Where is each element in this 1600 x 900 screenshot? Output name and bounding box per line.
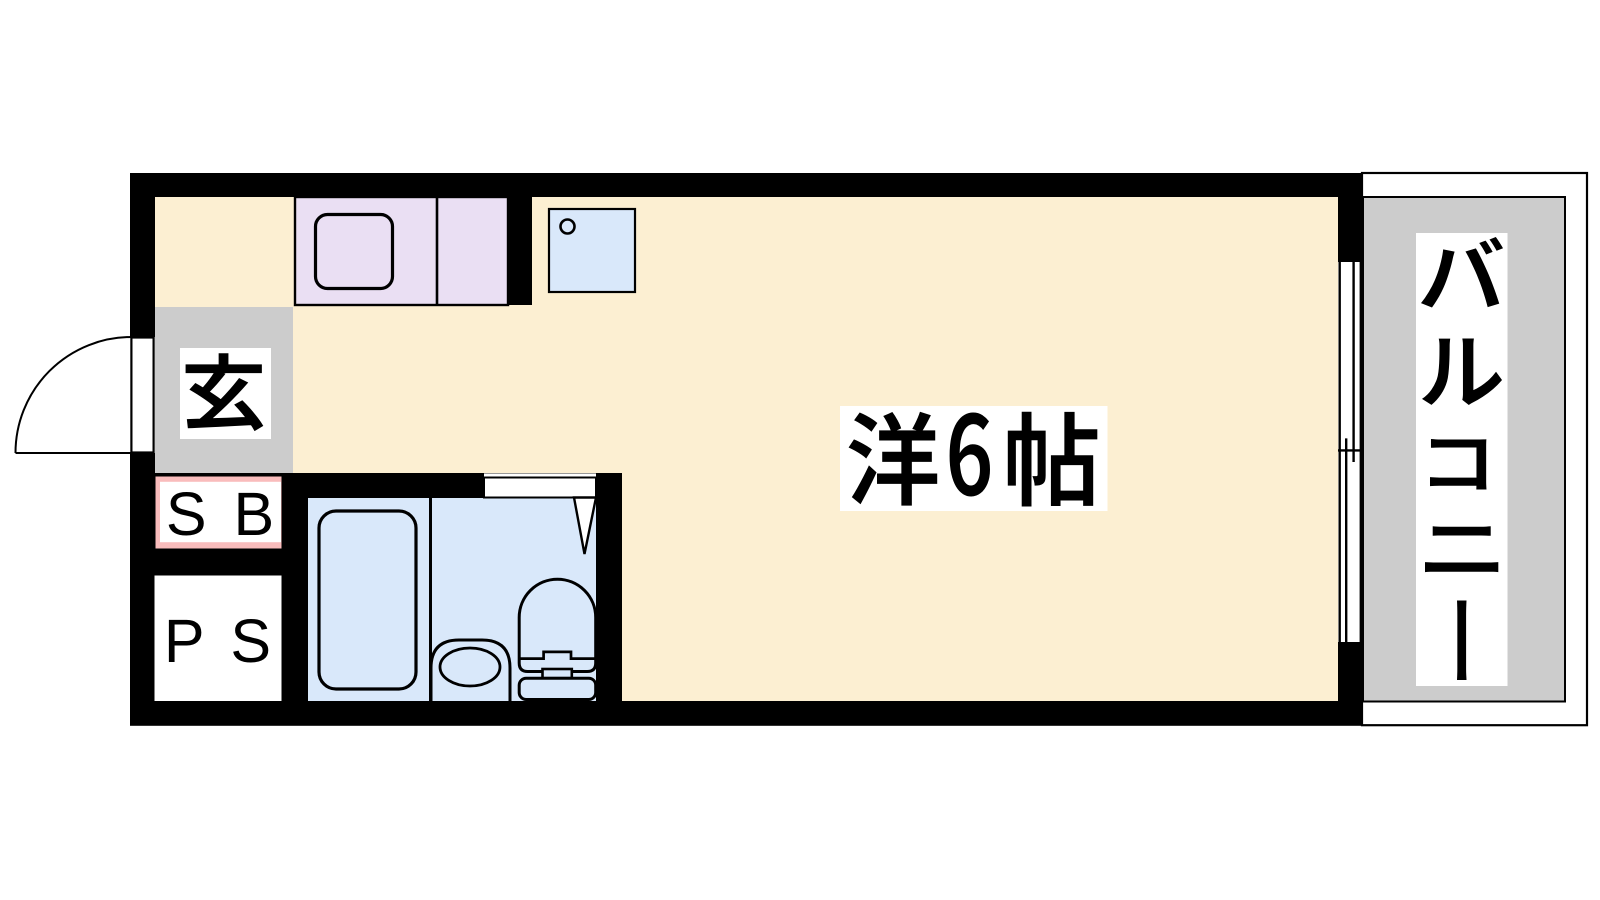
svg-text:S B: S B: [166, 480, 279, 548]
svg-text:P S: P S: [164, 607, 276, 675]
